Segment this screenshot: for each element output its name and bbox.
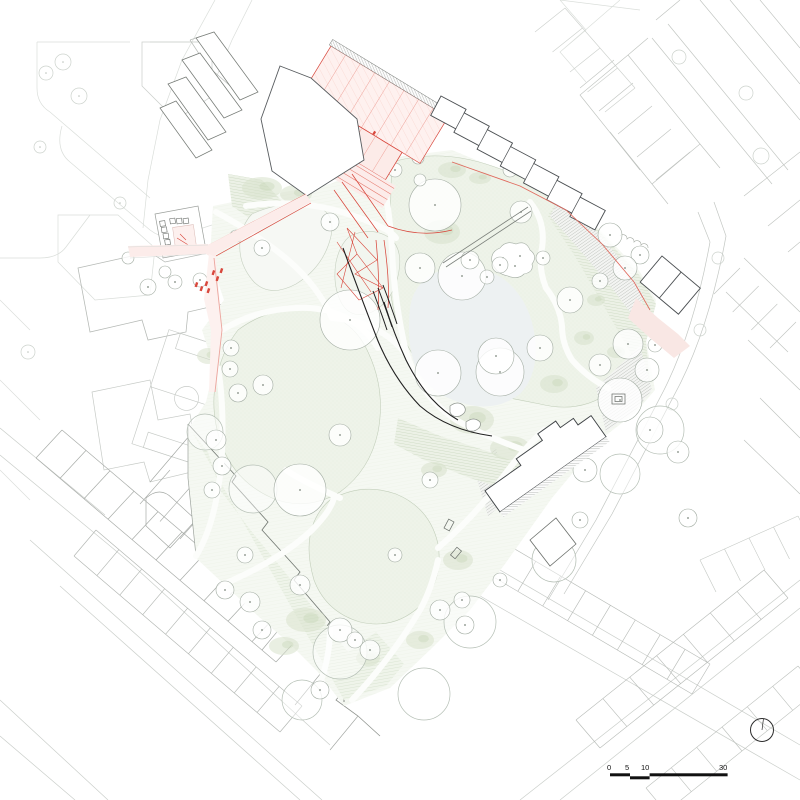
svg-text:30: 30 [719, 763, 727, 772]
svg-text:0: 0 [607, 763, 611, 772]
svg-text:10: 10 [641, 763, 649, 772]
svg-text:5: 5 [625, 763, 629, 772]
